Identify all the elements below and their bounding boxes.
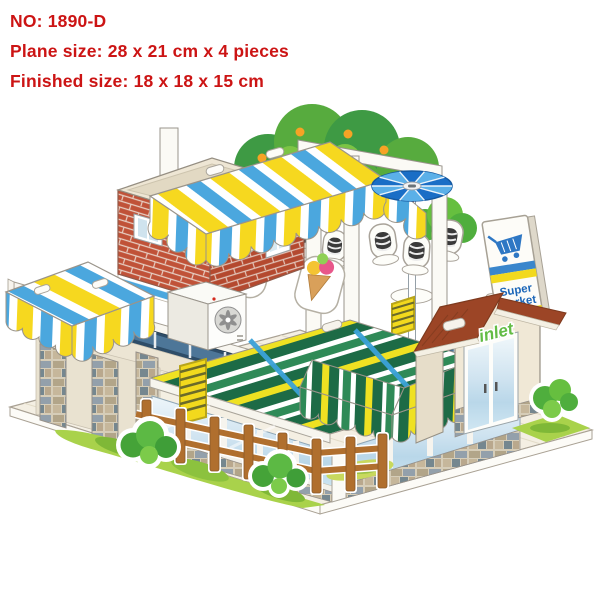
ac-unit bbox=[168, 282, 246, 350]
product-specs: NO: 1890-D Plane size: 28 x 21 cm x 4 pi… bbox=[10, 6, 289, 96]
finished-size: Finished size: 18 x 18 x 15 cm bbox=[10, 66, 289, 96]
plane-size: Plane size: 28 x 21 cm x 4 pieces bbox=[10, 36, 289, 66]
product-image: NO: 1890-D Plane size: 28 x 21 cm x 4 pi… bbox=[0, 0, 600, 600]
glass-doors bbox=[464, 332, 518, 434]
product-number: NO: 1890-D bbox=[10, 6, 289, 36]
stone-pillar bbox=[40, 344, 66, 428]
stone-pillar bbox=[92, 354, 118, 448]
parasol bbox=[372, 171, 452, 201]
stone-wainscot bbox=[455, 407, 464, 437]
parasol-hub-slot bbox=[408, 185, 416, 188]
wall-vent-louver bbox=[392, 297, 414, 336]
